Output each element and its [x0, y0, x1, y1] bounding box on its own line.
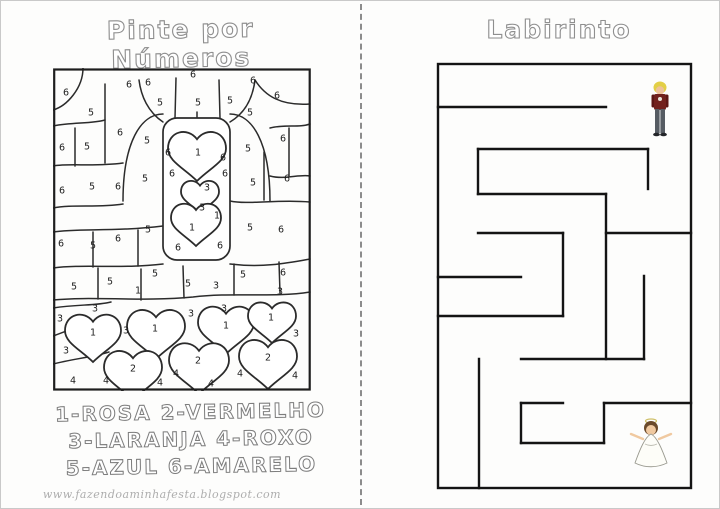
region-number: 4	[237, 369, 243, 380]
region-number: 5	[152, 269, 158, 280]
region-number: 5	[90, 241, 96, 252]
region-number: 3	[123, 326, 129, 337]
heart-shape	[239, 340, 297, 389]
region-number: 6	[217, 241, 223, 252]
paint-by-numbers-title: Pinte por Números	[41, 13, 322, 76]
region-number: 3	[63, 346, 69, 357]
region-number: 1	[223, 321, 229, 332]
color-by-number-puzzle: 6566565566565656165665656656331166565656…	[53, 68, 311, 391]
region-number: 6	[117, 128, 123, 139]
region-number: 6	[58, 239, 64, 250]
legend-line-3: 5-azul 6-amarelo	[41, 450, 341, 482]
color-legend: 1-rosa 2-vermelho 3-laranja 4-roxo 5-azu…	[40, 396, 341, 482]
region-number: 6	[145, 78, 151, 89]
region-number: 6	[169, 169, 175, 180]
region-number: 6	[59, 143, 65, 154]
worksheet-page: Pinte por Números	[0, 0, 720, 509]
region-number: 5	[142, 174, 148, 185]
region-number: 1	[268, 313, 274, 324]
region-number: 3	[188, 309, 194, 320]
region-number: 4	[208, 379, 214, 390]
region-number: 6	[278, 225, 284, 236]
region-number: 5	[71, 282, 77, 293]
region-number: 2	[265, 353, 271, 364]
bride-character	[628, 417, 674, 469]
region-number: 6	[274, 91, 280, 102]
website-url: www.fazendoaminhafesta.blogspot.com	[17, 488, 307, 501]
region-number: 6	[280, 268, 286, 279]
region-number: 5	[144, 136, 150, 147]
region-number: 5	[84, 142, 90, 153]
region-number: 3	[221, 304, 227, 315]
region-number: 5	[247, 108, 253, 119]
region-number: 6	[115, 182, 121, 193]
region-number: 3	[204, 183, 210, 194]
region-number: 5	[240, 270, 246, 281]
region-number: 5	[145, 225, 151, 236]
region-number: 6	[165, 148, 171, 159]
region-number: 2	[130, 364, 136, 375]
region-number: 3	[277, 287, 283, 298]
region-number: 5	[227, 96, 233, 107]
region-number: 6	[115, 234, 121, 245]
region-number: 5	[157, 98, 163, 109]
region-number: 5	[195, 98, 201, 109]
region-number: 4	[157, 378, 163, 389]
region-number: 5	[107, 277, 113, 288]
region-number: 3	[293, 329, 299, 340]
region-number: 6	[59, 186, 65, 197]
region-number: 3	[213, 281, 219, 292]
region-number: 5	[185, 279, 191, 290]
dashed-fold-divider	[360, 4, 362, 505]
region-number: 3	[57, 314, 63, 325]
region-number: 6	[63, 88, 69, 99]
region-number: 1	[189, 223, 195, 234]
maze-title: Labirinto	[429, 15, 689, 44]
region-number: 1	[135, 286, 141, 297]
region-number: 6	[190, 70, 196, 81]
region-number: 5	[89, 182, 95, 193]
region-number: 6	[175, 243, 181, 254]
region-number: 1	[214, 211, 220, 222]
region-number: 2	[195, 356, 201, 367]
region-number: 4	[103, 376, 109, 387]
region-number: 1	[90, 328, 96, 339]
prince-character	[647, 81, 673, 139]
region-number: 6	[126, 80, 132, 91]
region-number: 3	[199, 203, 205, 214]
region-number: 6	[280, 134, 286, 145]
region-number: 5	[245, 144, 251, 155]
region-number: 4	[292, 371, 298, 382]
region-number: 1	[195, 148, 201, 159]
region-number: 6	[250, 76, 256, 87]
region-number: 6	[222, 169, 228, 180]
region-number: 1	[152, 324, 158, 335]
heart-shape	[169, 343, 229, 391]
region-number: 5	[250, 178, 256, 189]
region-number: 3	[92, 304, 98, 315]
region-number: 5	[247, 223, 253, 234]
region-number: 4	[173, 369, 179, 380]
region-number: 4	[70, 376, 76, 387]
region-number: 6	[284, 174, 290, 185]
region-number: 5	[88, 108, 94, 119]
region-number: 6	[220, 153, 226, 164]
